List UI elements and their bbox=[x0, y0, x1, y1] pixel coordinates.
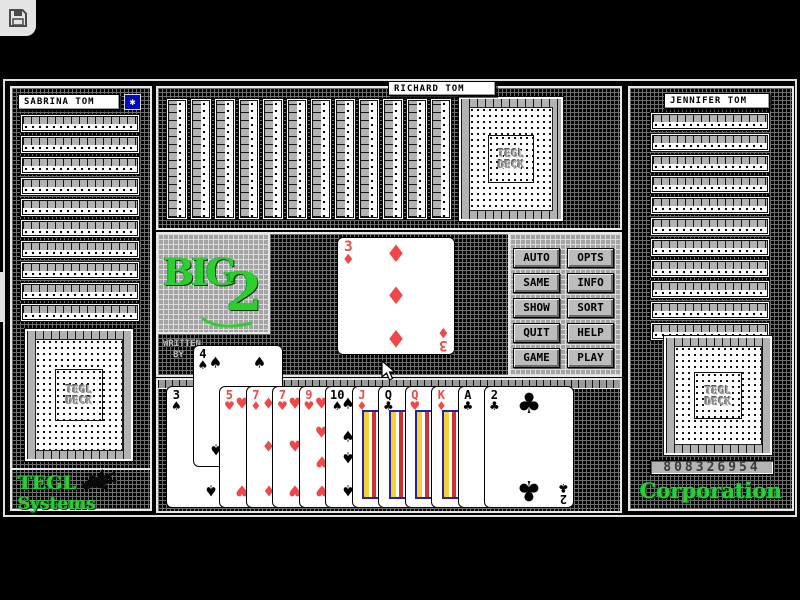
big2-logo-word: BIG bbox=[163, 250, 234, 294]
card-corner-top: 3♠ bbox=[171, 390, 182, 412]
card-back-frame: TEGLDECK bbox=[461, 99, 561, 219]
card-edge-dots bbox=[345, 100, 354, 218]
card-edge-ridge bbox=[168, 100, 177, 218]
save-button[interactable] bbox=[0, 0, 36, 36]
card-edge-dots bbox=[22, 166, 138, 173]
card-edge-ridge bbox=[652, 324, 768, 332]
card-edge-dots bbox=[177, 100, 186, 218]
player-name-plate-left: SABRINA TOM bbox=[18, 94, 120, 110]
diamond-pip-icon: ♦ bbox=[385, 284, 407, 308]
card-back-edge bbox=[650, 301, 770, 320]
player-name-left: SABRINA TOM bbox=[24, 97, 95, 107]
card-back-edge bbox=[650, 112, 770, 131]
card-back-edge bbox=[238, 98, 260, 220]
card-edge-ridge bbox=[652, 240, 768, 248]
card-back-edge bbox=[650, 154, 770, 173]
card-back-edge bbox=[650, 280, 770, 299]
card-edge-ridge bbox=[652, 303, 768, 311]
game-button[interactable]: GAME bbox=[513, 348, 560, 368]
quit-button[interactable]: QUIT bbox=[513, 323, 560, 343]
deck-label: TEGLDECK bbox=[55, 369, 103, 422]
card-edge-ridge bbox=[652, 282, 768, 290]
player-hand-panel: 3♠3♠♠♠♠4♠4♠♠♠♠♠5♥5♥♥♥♥♥♥7♦7♦♦♦♦♦♦♦♦7♥7♥♥… bbox=[156, 378, 622, 513]
hand-cards: 3♠3♠♠♠♠4♠4♠♠♠♠♠5♥5♥♥♥♥♥♥7♦7♦♦♦♦♦♦♦♦7♥7♥♥… bbox=[158, 380, 620, 511]
card-back-pattern: TEGLDECK bbox=[674, 346, 762, 445]
action-buttons-box: AUTOOPTSSAMEINFOSHOWSORTQUITHELPGAMEPLAY bbox=[510, 234, 620, 375]
big2-logo-number: 2 bbox=[226, 262, 262, 323]
card-corner-top: 4♠ bbox=[198, 349, 209, 371]
diamond-pip-icon: ♦ bbox=[385, 326, 407, 350]
card-edge-ridge bbox=[652, 177, 768, 185]
card-edge-dots bbox=[22, 124, 138, 131]
diamond-pip-icon: ♦ bbox=[385, 242, 407, 266]
brand-tegl-text: TEGL bbox=[18, 472, 76, 494]
card-corner-top: 7♥ bbox=[277, 390, 288, 412]
card-back-edge bbox=[406, 98, 428, 220]
card-back-edge bbox=[20, 261, 140, 280]
card-edge-dots bbox=[652, 290, 768, 297]
card-edge-dots bbox=[652, 206, 768, 213]
card-back-edge bbox=[20, 156, 140, 175]
star-icon: ✱ bbox=[129, 97, 135, 108]
heart-icon: ♥ bbox=[304, 401, 315, 412]
player-name-plate-right: JENNIFER TOM bbox=[664, 93, 770, 109]
card-edge-dots bbox=[652, 185, 768, 192]
player-panel-left: SABRINA TOM ✱ TEGLDECK TEGL Systems bbox=[10, 86, 152, 511]
card-edge-dots bbox=[273, 100, 282, 218]
mouse-cursor bbox=[381, 360, 397, 382]
card-edge-dots bbox=[417, 100, 426, 218]
card-back-edge bbox=[166, 98, 188, 220]
card-edge-ridge bbox=[312, 100, 321, 218]
card-back-edge bbox=[20, 198, 140, 217]
card-edge-ridge bbox=[216, 100, 225, 218]
tegl-systems-logo: TEGL Systems bbox=[18, 472, 148, 514]
card-edge-ridge bbox=[384, 100, 393, 218]
card-back-edge bbox=[650, 259, 770, 278]
card-corner-top: J♦ bbox=[357, 390, 368, 412]
card-edge-ridge bbox=[288, 100, 297, 218]
club-icon: ♣ bbox=[463, 401, 474, 412]
card-edge-ridge bbox=[652, 156, 768, 164]
deck-label: TEGLDECK bbox=[488, 135, 534, 184]
card-back-pattern: TEGLDECK bbox=[35, 339, 123, 451]
logo-swoosh-icon bbox=[200, 316, 254, 332]
card-edge-dots bbox=[22, 313, 138, 320]
card-edge-ridge bbox=[652, 198, 768, 206]
card-back-edge bbox=[650, 217, 770, 236]
deck-label-text: DECK bbox=[66, 395, 93, 406]
card-edge-dots bbox=[652, 164, 768, 171]
brand-systems-text: Systems bbox=[18, 494, 148, 514]
card-edge-ridge bbox=[22, 263, 138, 271]
card-edge-ridge bbox=[22, 242, 138, 250]
card-edge-dots bbox=[22, 229, 138, 236]
card-edge-ridge bbox=[192, 100, 201, 218]
spade-icon: ♠ bbox=[198, 360, 209, 371]
spade-pip-icon: ♠ bbox=[253, 355, 266, 370]
card-back-edge bbox=[310, 98, 332, 220]
big2-logo-box: BIG 2 bbox=[158, 234, 270, 334]
heart-icon: ♥ bbox=[224, 401, 235, 412]
card-edge-ridge bbox=[336, 100, 345, 218]
card-corner-top: 5♥ bbox=[224, 390, 235, 412]
card-back-edge bbox=[358, 98, 380, 220]
card-edge-ridge bbox=[432, 100, 441, 218]
card-back-frame: TEGLDECK bbox=[27, 331, 131, 459]
card-back-edge bbox=[262, 98, 284, 220]
card-back-edge bbox=[20, 114, 140, 133]
player-name-plate-top: RICHARD TOM bbox=[388, 81, 496, 96]
card-edge-dots bbox=[22, 292, 138, 299]
diamond-icon: ♦ bbox=[342, 254, 355, 267]
club-icon: ♣ bbox=[489, 401, 500, 412]
card-edge-dots bbox=[249, 100, 258, 218]
card-edge-dots bbox=[22, 250, 138, 257]
card-edge-dots bbox=[393, 100, 402, 218]
card-edge-dots bbox=[321, 100, 330, 218]
card-back-pile-right: TEGLDECK bbox=[663, 335, 773, 456]
card-back-edge bbox=[650, 238, 770, 257]
card-back-pile-top: TEGLDECK bbox=[458, 96, 564, 222]
card-edges-top bbox=[166, 98, 454, 220]
card-corner-top: K♦ bbox=[436, 390, 447, 412]
floppy-disk-icon bbox=[8, 8, 28, 28]
card-back-edge bbox=[650, 175, 770, 194]
card-corner-top: 2♣ bbox=[489, 390, 500, 412]
card-back-edge bbox=[20, 303, 140, 322]
card-edge-dots bbox=[652, 248, 768, 255]
card-edge-dots bbox=[22, 187, 138, 194]
card-back-edge bbox=[20, 219, 140, 238]
card-edge-ridge bbox=[408, 100, 417, 218]
deck-label-text: TEGL bbox=[705, 385, 732, 396]
spade-pip-icon: ♠ bbox=[204, 483, 217, 498]
card-edge-dots bbox=[652, 269, 768, 276]
card-back-edge bbox=[382, 98, 404, 220]
card-edges-right bbox=[650, 112, 770, 343]
card-edge-dots bbox=[369, 100, 378, 218]
club-pip-icon: ♣ bbox=[516, 476, 541, 504]
sort-button[interactable]: SORT bbox=[567, 298, 614, 318]
card-edge-ridge bbox=[22, 200, 138, 208]
card-edge-dots bbox=[652, 311, 768, 318]
diamond-icon: ♦ bbox=[437, 325, 450, 338]
card-edge-dots bbox=[201, 100, 210, 218]
card-back-pattern: TEGLDECK bbox=[469, 107, 553, 211]
card-back-edge bbox=[20, 240, 140, 259]
card-back-edge bbox=[20, 177, 140, 196]
card-edge-ridge bbox=[22, 305, 138, 313]
card-edge-ridge bbox=[22, 221, 138, 229]
card-edge-ridge bbox=[22, 137, 138, 145]
playing-card-3-diamond: 3♦3♦♦♦♦ bbox=[337, 237, 455, 355]
card-corner-top: 7♦ bbox=[251, 390, 262, 412]
card-edge-ridge bbox=[22, 179, 138, 187]
diamond-icon: ♦ bbox=[251, 401, 262, 412]
same-button[interactable]: SAME bbox=[513, 273, 560, 293]
play-button[interactable]: PLAY bbox=[567, 348, 614, 368]
card-edge-ridge bbox=[652, 261, 768, 269]
card-back-pile-left: TEGLDECK bbox=[24, 328, 134, 462]
card-edge-ridge bbox=[360, 100, 369, 218]
card-back-edge bbox=[650, 196, 770, 215]
show-button[interactable]: SHOW bbox=[513, 298, 560, 318]
card-edge-dots bbox=[652, 143, 768, 150]
serial-number-bar: 808326954 bbox=[650, 460, 774, 475]
card-corner-top: 9♥ bbox=[304, 390, 315, 412]
spade-pip-icon: ♠ bbox=[209, 355, 222, 370]
card-back-frame: TEGLDECK bbox=[666, 338, 770, 453]
player-panel-top: TEGLDECK bbox=[156, 86, 622, 230]
opts-button[interactable]: OPTS bbox=[567, 248, 614, 268]
card-corner-top: A♣ bbox=[463, 390, 474, 412]
card-edge-ridge bbox=[652, 219, 768, 227]
card-back-edge bbox=[430, 98, 452, 220]
card-edge-ridge bbox=[22, 158, 138, 166]
brand-corporation-text: Corporation bbox=[630, 478, 792, 503]
card-edge-dots bbox=[22, 271, 138, 278]
spade-icon: ♠ bbox=[171, 401, 182, 412]
card-edge-dots bbox=[297, 100, 306, 218]
deck-label: TEGLDECK bbox=[694, 372, 742, 419]
card-edge-ridge bbox=[240, 100, 249, 218]
turn-indicator-badge: ✱ bbox=[124, 94, 141, 110]
card-corner-top: 3♦ bbox=[342, 241, 355, 267]
info-button[interactable]: INFO bbox=[567, 273, 614, 293]
help-button[interactable]: HELP bbox=[567, 323, 614, 343]
card-corner-top: Q♣ bbox=[383, 390, 394, 412]
eagle-icon bbox=[76, 466, 122, 492]
card-edge-dots bbox=[441, 100, 450, 218]
card-back-edge bbox=[20, 282, 140, 301]
card-edge-dots bbox=[652, 122, 768, 129]
card-back-edge bbox=[190, 98, 212, 220]
card-back-edge bbox=[214, 98, 236, 220]
card-edges-left bbox=[20, 114, 140, 324]
card-edge-dots bbox=[652, 227, 768, 234]
card-back-edge bbox=[650, 133, 770, 152]
player-name-top: RICHARD TOM bbox=[394, 84, 465, 94]
card-back-edge bbox=[334, 98, 356, 220]
card-edge-dots bbox=[22, 145, 138, 152]
card-edge-ridge bbox=[652, 114, 768, 122]
card-back-edge bbox=[20, 135, 140, 154]
player-name-right: JENNIFER TOM bbox=[670, 96, 747, 106]
heart-icon: ♥ bbox=[277, 401, 288, 412]
playing-card-2-club[interactable]: 2♣2♣♣♣ bbox=[484, 386, 574, 508]
deck-label-text: DECK bbox=[705, 396, 732, 407]
auto-button[interactable]: AUTO bbox=[513, 248, 560, 268]
card-corner-bottom: 3♦ bbox=[437, 325, 450, 351]
club-pip-icon: ♣ bbox=[516, 390, 541, 418]
card-edge-ridge bbox=[22, 284, 138, 292]
card-corner-top: Q♥ bbox=[410, 390, 421, 412]
player-panel-right: JENNIFER TOM TEGLDECK 808326954 Corporat… bbox=[628, 86, 794, 511]
card-edge-ridge bbox=[22, 116, 138, 124]
card-edge-dots bbox=[225, 100, 234, 218]
deck-label-text: DECK bbox=[498, 159, 525, 170]
serial-number: 808326954 bbox=[663, 460, 760, 475]
card-edge-ridge bbox=[264, 100, 273, 218]
card-edge-dots bbox=[22, 208, 138, 215]
card-edge-ridge bbox=[652, 135, 768, 143]
card-corner-bottom: 2♣ bbox=[558, 482, 569, 504]
card-back-edge bbox=[286, 98, 308, 220]
club-icon: ♣ bbox=[558, 482, 569, 493]
